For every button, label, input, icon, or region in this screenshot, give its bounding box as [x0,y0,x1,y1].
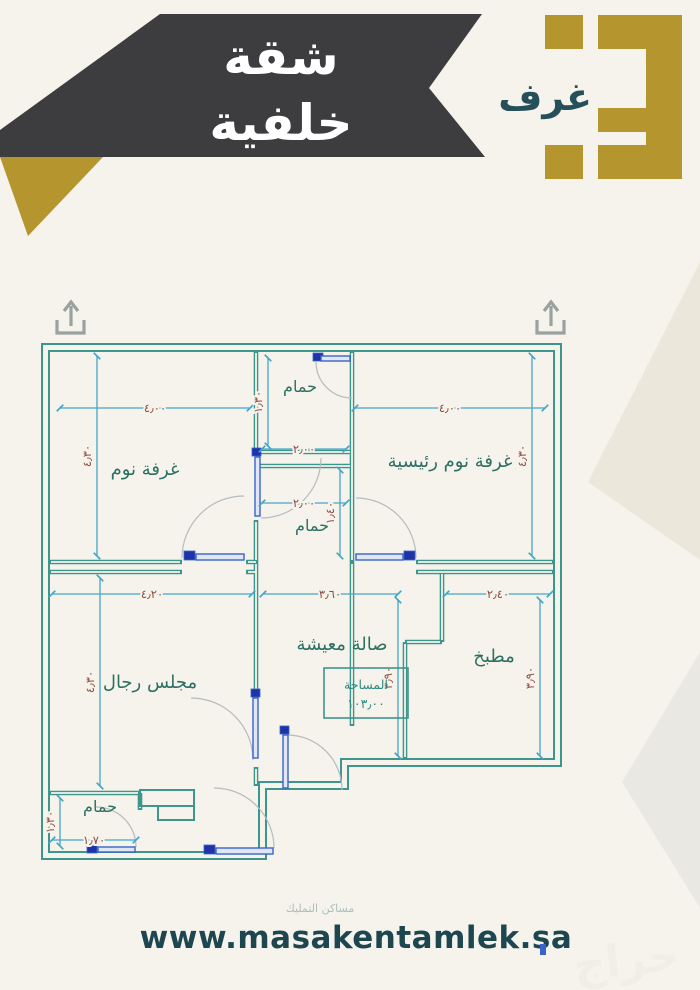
watermark-blue-mark [540,944,546,955]
poster-canvas: شقة خلفية غرف [0,0,700,990]
dim-bath-mid-width: ٢٫٠٠ [293,496,315,510]
outer-wall-inner [49,351,554,852]
room-bedroom: غرفة نوم [111,459,180,480]
area-box-label: المساحة [344,677,388,692]
banner-title-line1: شقة [223,28,338,86]
dim-bath-bottom-width: ١٫٧٠ [83,833,105,847]
rooms-count-label: غرف [498,75,592,119]
north-arrow-icon [57,302,84,333]
room-master-bedroom: غرفة نوم رئيسية [388,451,513,472]
door-leaves [87,353,415,854]
room-majlis: مجلس رجال [103,672,197,693]
dim-bath-bottom-height: ١٫٣٠ [43,811,57,833]
area-box-value: ١٠٣٫٠٠ [347,696,385,711]
title-banner: شقة خلفية [0,14,485,236]
room-bath-mid: حمام [295,516,329,535]
dim-kitchen-width: ٢٫٤٠ [487,587,509,601]
footer: مساكن التمليك www.masakentamlek.sa حراج [140,902,682,990]
dim-master-width: ٤٫٠٠ [439,401,461,415]
banner-title-line2: خلفية [209,94,352,152]
interior-walls [49,351,554,820]
dim-bedroom-width: ٤٫٠٠ [144,401,166,415]
dim-master-height: ٤٫٣٠ [515,445,529,467]
dim-bedroom-height: ٤٫٣٠ [80,445,94,467]
dimension-lines [52,356,550,846]
background-watermark-shapes [588,262,700,908]
north-arrow-icon [537,302,564,333]
dim-bath-top-width: ٢٫٠٠ [293,442,315,456]
poster: شقة خلفية غرف [0,0,700,990]
area-box: المساحة ١٠٣٫٠٠ [324,668,408,718]
dim-kitchen-height: ٣٫٩٠ [523,667,537,689]
gold-triangle [0,157,103,236]
dim-majlis-height: ٤٫٣٠ [83,671,97,693]
website-link[interactable]: www.masakentamlek.sa [140,920,573,956]
dim-bath-top-height: ١٫٣٠ [251,391,265,413]
room-bath-bottom: حمام [83,797,117,816]
dim-living-width: ٣٫٦٠ [319,587,341,601]
room-living: صالة معيشة [296,634,387,655]
company-name-faint: مساكن التمليك [286,902,355,915]
dim-majlis-width: ٤٫٢٠ [141,587,163,601]
haraj-watermark: حراج [571,930,682,990]
rooms-badge: غرف [498,15,682,179]
room-kitchen: مطبخ [473,646,514,667]
floor-plan: ٤٫٠٠ ٤٫٠٠ ٢٫٠٠ ٢٫٠٠ ٤٫٢٠ ٣٫٦٠ ٢٫٤٠ ١٫٧٠ … [42,344,561,859]
room-bath-top: حمام [283,377,317,396]
